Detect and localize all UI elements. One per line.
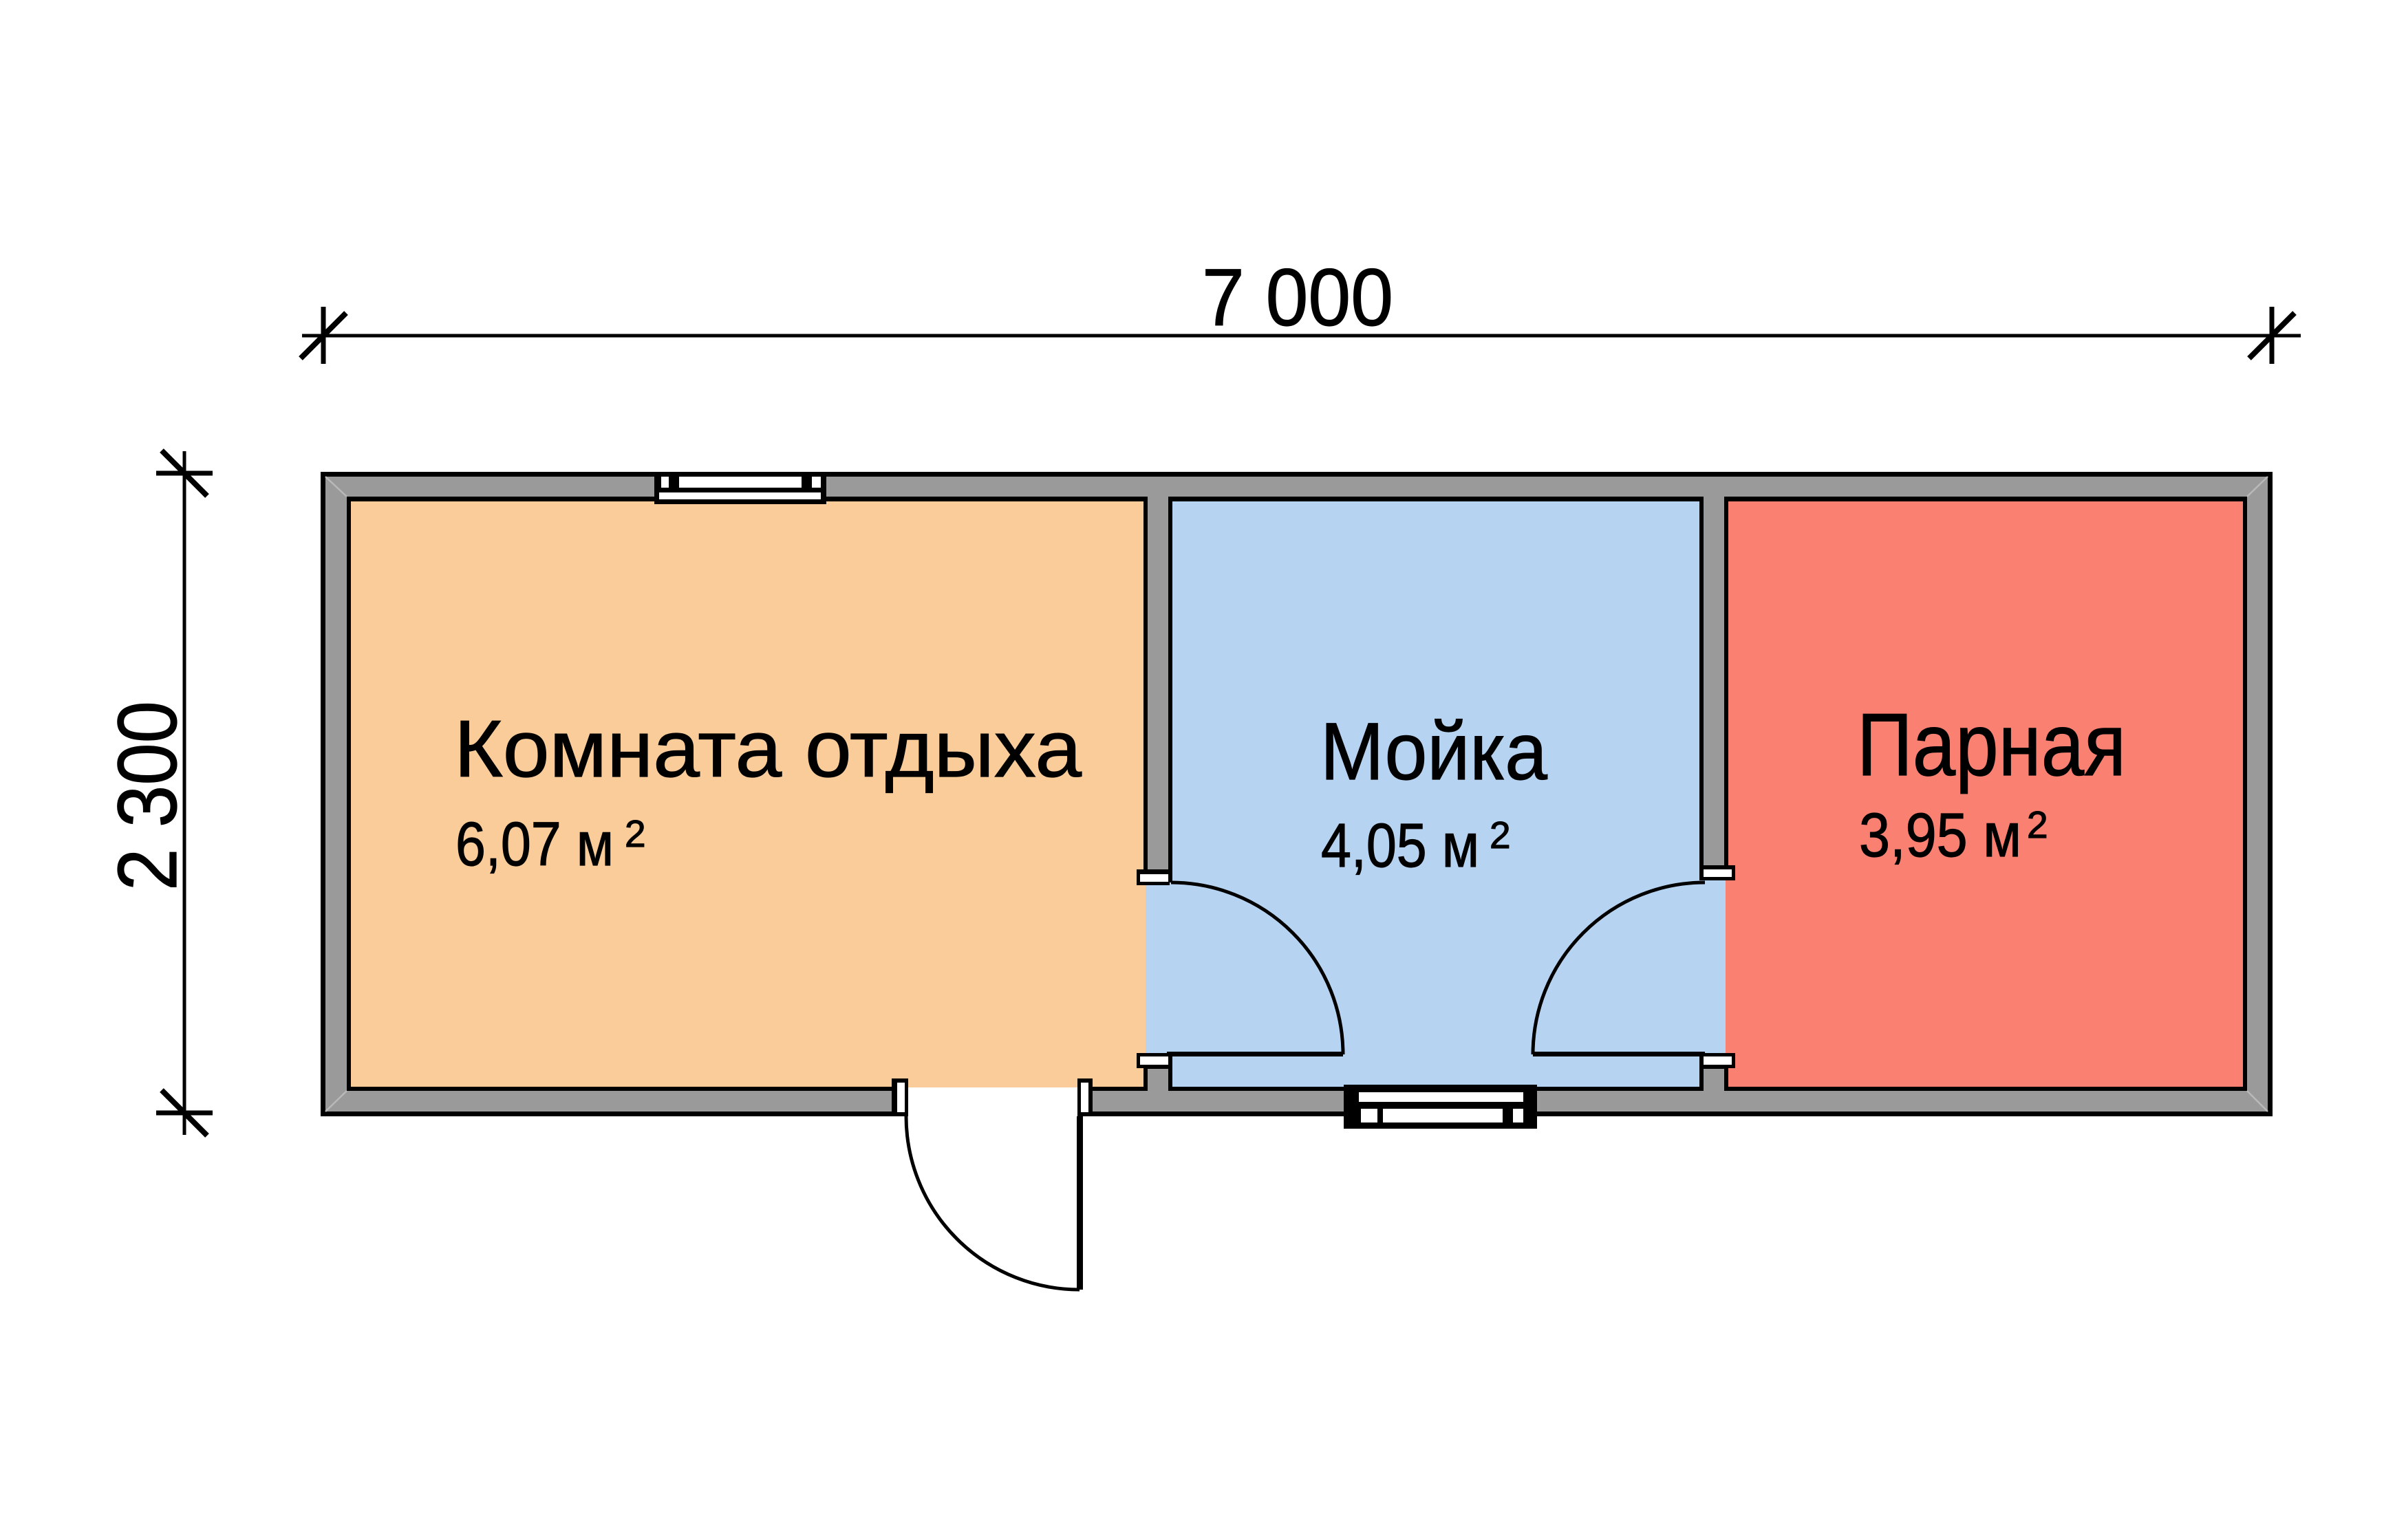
svg-text:4,05 м: 4,05 м xyxy=(1321,812,1479,880)
svg-text:6,07 м: 6,07 м xyxy=(455,810,614,879)
svg-text:Мойка: Мойка xyxy=(1320,706,1547,797)
svg-text:Парная: Парная xyxy=(1857,695,2126,794)
svg-text:2 300: 2 300 xyxy=(100,701,194,891)
svg-text:2: 2 xyxy=(1490,814,1511,856)
svg-text:2: 2 xyxy=(2027,803,2048,846)
svg-text:3,95 м: 3,95 м xyxy=(1859,801,2021,870)
svg-text:Комната отдыха: Комната отдыха xyxy=(454,704,1082,794)
svg-text:2: 2 xyxy=(625,812,646,855)
svg-text:7 000: 7 000 xyxy=(1202,252,1393,343)
